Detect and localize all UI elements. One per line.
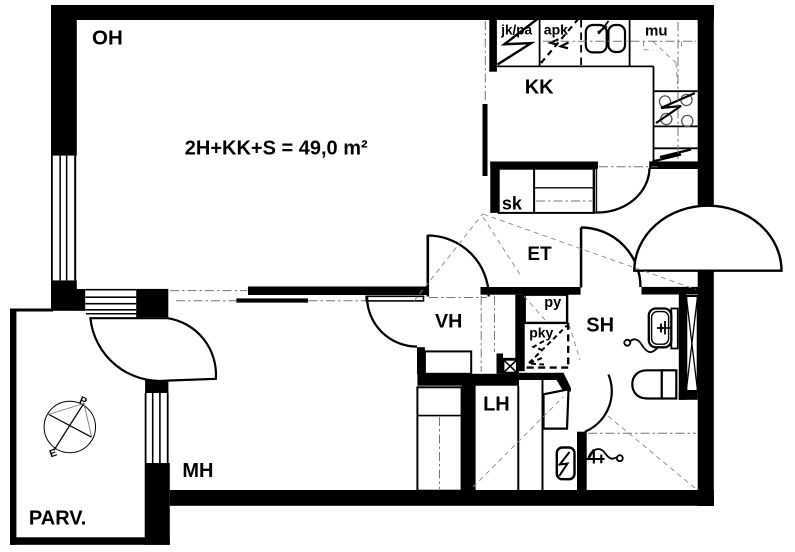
svg-text:2H+KK+S = 49,0 m²: 2H+KK+S = 49,0 m² bbox=[185, 138, 368, 160]
svg-text:OH: OH bbox=[92, 27, 123, 50]
svg-text:sk: sk bbox=[502, 193, 523, 213]
svg-text:mu: mu bbox=[645, 22, 668, 39]
svg-text:py: py bbox=[544, 295, 561, 311]
svg-text:LH: LH bbox=[483, 394, 510, 416]
svg-text:apk: apk bbox=[544, 22, 568, 38]
svg-text:SH: SH bbox=[586, 315, 614, 337]
svg-text:KK: KK bbox=[525, 77, 554, 99]
svg-text:pky: pky bbox=[529, 325, 553, 341]
svg-text:PARV.: PARV. bbox=[29, 508, 86, 530]
svg-text:ET: ET bbox=[527, 244, 552, 265]
svg-text:MH: MH bbox=[182, 460, 213, 482]
svg-text:jk/pa: jk/pa bbox=[500, 22, 532, 37]
svg-text:VH: VH bbox=[435, 311, 462, 333]
